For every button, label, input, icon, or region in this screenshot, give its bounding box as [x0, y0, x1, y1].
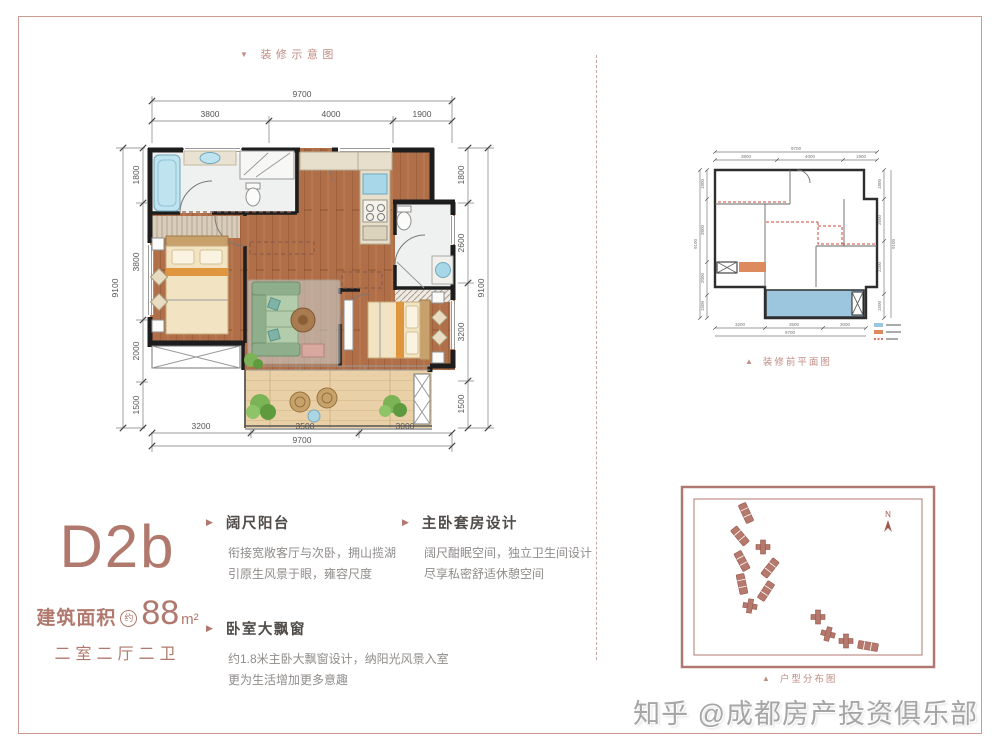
zhihu-watermark: 知乎 @成都房产投资俱乐部: [633, 692, 978, 731]
wicker-chair-1: [290, 392, 310, 412]
site-map: N: [682, 487, 934, 667]
distribution-caption-text: 户型分布图: [780, 671, 838, 685]
unit-rooms: 二室二厅二卫: [30, 640, 205, 664]
dim-label: 3200: [456, 322, 466, 341]
decorated-plan-caption: ▼ 装修示意图: [240, 46, 338, 62]
triangle-down-icon: ▼: [240, 50, 252, 59]
triangle-up-icon: ▲: [762, 674, 772, 683]
feature-title: 阔尺阳台: [226, 512, 290, 533]
dim-label: 9100: [476, 278, 486, 297]
feature-desc: 阔尺酣眠空间，独立卫生间设计 尽享私密舒适休憩空间: [424, 543, 592, 585]
svg-text:9100: 9100: [693, 238, 698, 249]
main-floor-plan: [147, 147, 456, 429]
feature-item: ▶ 主卧套房设计 阔尺酣眠空间，独立卫生间设计 尽享私密舒适休憩空间: [402, 512, 592, 585]
before-orange-area: [739, 262, 766, 272]
bed-1: [166, 236, 228, 334]
unit-info: D2b 建筑面积 约 88 m² 二室二厅二卫: [30, 516, 205, 664]
dim-label: 9700: [293, 435, 312, 445]
shower: [240, 151, 294, 179]
dim-label: 1900: [413, 109, 432, 119]
dim-label: 9100: [110, 278, 120, 297]
bedroom1-carpet: [152, 216, 240, 238]
dim-label: 3800: [201, 109, 220, 119]
dim-label: 1800: [456, 165, 466, 184]
basin-2: [432, 256, 453, 284]
before-plan: 9700 3800 4000 1900 9100 1800 3800 2000 …: [693, 146, 901, 339]
svg-text:3800: 3800: [700, 224, 705, 235]
nightstand-m2: [432, 352, 444, 363]
triangle-up-icon: ▲: [745, 357, 755, 366]
svg-text:3200: 3200: [735, 322, 746, 327]
svg-text:1800: 1800: [700, 178, 705, 189]
dim-label: 1800: [131, 165, 141, 184]
svg-text:3800: 3800: [741, 154, 752, 159]
before-ladder-box: [852, 292, 863, 315]
toilet-1: [246, 183, 260, 206]
bathtub: [154, 155, 180, 211]
feature-column-2: ▶ 主卧套房设计 阔尺酣眠空间，独立卫生间设计 尽享私密舒适休憩空间: [402, 512, 592, 585]
distribution-caption: ▲ 户型分布图: [762, 671, 837, 685]
area-value: 88: [141, 594, 179, 633]
approx-circle-icon: 约: [120, 610, 137, 627]
console-table: [344, 300, 353, 350]
svg-text:3000: 3000: [840, 322, 851, 327]
kitchen-sink: [363, 174, 387, 194]
svg-text:N: N: [885, 510, 891, 519]
svg-text:2600: 2600: [877, 214, 882, 225]
triangle-right-icon: ▶: [206, 517, 213, 528]
dim-label: 3000: [396, 421, 415, 431]
feature-desc: 约1.8米主卧大飘窗设计，纳阳光风景入室 更为生活增加更多意趣: [228, 649, 456, 691]
svg-text:9700: 9700: [785, 330, 796, 335]
balcony-floor: [245, 370, 432, 428]
svg-text:4000: 4000: [805, 154, 816, 159]
dim-label: 2000: [131, 341, 141, 360]
dim-label: 3500: [296, 421, 315, 431]
ac-platform: [152, 346, 240, 368]
before-plan-caption: ▲ 装修前平面图: [745, 354, 832, 368]
nightstand-1a: [152, 238, 164, 250]
nightstand-m1: [432, 292, 444, 303]
dim-label: 2600: [456, 233, 466, 252]
feature-item: ▶ 卧室大飘窗 约1.8米主卧大飘窗设计，纳阳光风景入室 更为生活增加更多意趣: [206, 618, 456, 691]
dim-label: 9700: [293, 89, 312, 99]
before-stair-box: [717, 262, 737, 273]
before-plan-legend: [874, 323, 901, 339]
svg-text:1500: 1500: [877, 300, 882, 311]
dim-label: 1500: [131, 395, 141, 414]
dim-label: 3800: [131, 252, 141, 271]
drain-box: [414, 374, 430, 424]
triangle-right-icon: ▶: [206, 623, 213, 634]
decorated-plan-caption-text: 装修示意图: [260, 46, 338, 62]
svg-text:1800: 1800: [877, 178, 882, 189]
svg-text:9100: 9100: [891, 238, 896, 249]
svg-text:1900: 1900: [856, 154, 867, 159]
svg-text:1500: 1500: [700, 300, 705, 311]
dim-label: 4000: [322, 109, 341, 119]
coffee-table-top: [298, 315, 308, 325]
svg-text:3500: 3500: [789, 322, 800, 327]
feature-title: 主卧套房设计: [422, 512, 518, 533]
nightstand-1b: [152, 320, 164, 332]
before-balcony: [766, 290, 864, 317]
vanity-sink: [184, 151, 236, 165]
ottoman: [302, 344, 324, 357]
triangle-right-icon: ▶: [402, 517, 409, 528]
wicker-chair-2: [317, 388, 337, 408]
feature-title: 卧室大飘窗: [226, 618, 306, 639]
bed-master: [368, 300, 430, 360]
before-plan-caption-text: 装修前平面图: [763, 354, 832, 368]
area-prefix: 建筑面积: [36, 603, 116, 630]
dim-label: 1500: [456, 394, 466, 413]
toilet-2: [397, 206, 411, 230]
unit-code: D2b: [30, 516, 205, 578]
page: 9700 3800 4000 1900 9100 1800 3800 2000 …: [0, 0, 1000, 750]
svg-text:2000: 2000: [700, 272, 705, 283]
unit-area: 建筑面积 约 88 m²: [30, 594, 205, 633]
svg-text:3200: 3200: [877, 261, 882, 272]
site-map-outer-border: [682, 487, 934, 667]
svg-text:9700: 9700: [791, 146, 802, 151]
area-unit: m²: [181, 611, 199, 628]
dim-label: 3200: [192, 421, 211, 431]
